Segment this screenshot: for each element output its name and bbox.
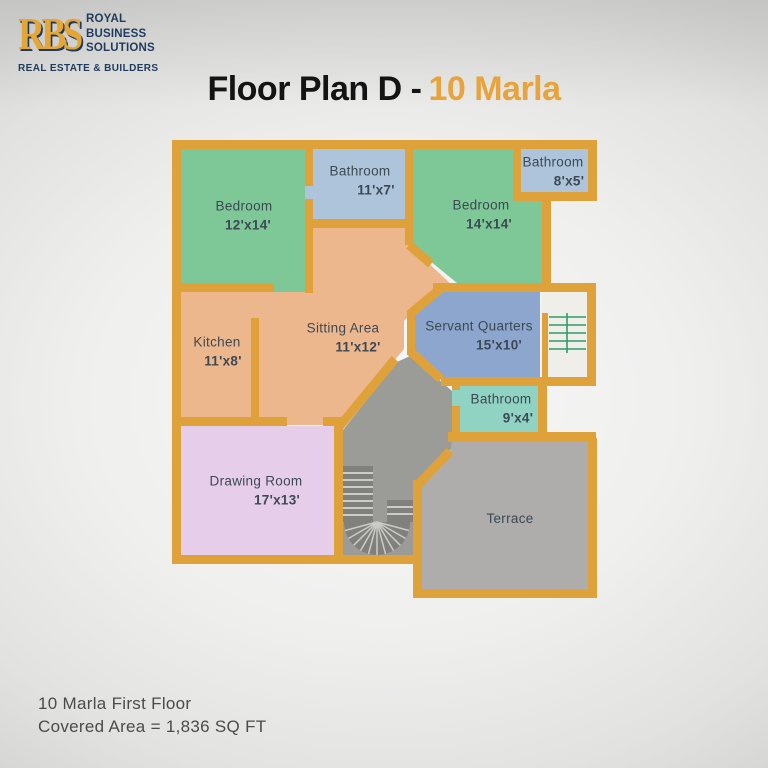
room-name: Bathroom	[471, 391, 532, 410]
room-size: 11'x8'	[199, 352, 246, 371]
room-name: Kitchen	[193, 334, 240, 353]
footer-line1: 10 Marla First Floor	[38, 692, 266, 715]
stair-treads-left	[343, 473, 373, 515]
floor-plan	[0, 0, 768, 768]
room-label-sitting-area: Sitting Area 11'x12'	[307, 320, 380, 357]
room-name: Bathroom	[523, 154, 584, 173]
wall	[172, 140, 181, 564]
wall	[542, 198, 551, 285]
room-size: 8'x5'	[539, 172, 600, 191]
wall	[513, 192, 597, 201]
wall	[513, 140, 521, 201]
room-label-bedroom-2: Bedroom 14'x14'	[453, 197, 510, 234]
room-label-servant-quarters: Servant Quarters 15'x10'	[425, 318, 533, 355]
room-name: Bedroom	[216, 198, 273, 217]
wall	[172, 140, 596, 149]
wall	[172, 283, 274, 292]
wall	[587, 283, 596, 378]
wall	[334, 417, 343, 564]
room-size: 14'x14'	[461, 215, 518, 234]
wall	[251, 318, 259, 425]
wall	[305, 199, 313, 293]
wall	[305, 140, 313, 186]
room-name: Servant Quarters	[425, 318, 533, 337]
room-name: Bedroom	[453, 197, 510, 216]
room-label-kitchen: Kitchen 11'x8'	[193, 334, 240, 371]
wall	[433, 283, 548, 292]
room-name: Sitting Area	[307, 320, 380, 339]
staircase-hall-area	[542, 292, 587, 377]
wall	[452, 385, 460, 390]
stair-flight-right	[387, 500, 415, 522]
wall	[407, 310, 415, 355]
room-label-terrace: Terrace	[486, 510, 533, 529]
room-label-bathroom-2: Bathroom 8'x5'	[523, 154, 584, 191]
room-size: 9'x4'	[488, 409, 549, 428]
footer: 10 Marla First Floor Covered Area = 1,83…	[38, 692, 266, 738]
wall	[441, 377, 596, 386]
room-label-bathroom-3: Bathroom 9'x4'	[471, 391, 532, 428]
room-size: 15'x10'	[445, 336, 553, 355]
room-size: 11'x7'	[346, 181, 407, 200]
room-label-bedroom-1: Bedroom 12'x14'	[216, 198, 273, 235]
wall	[413, 480, 422, 592]
wall	[588, 438, 597, 597]
wall	[172, 417, 287, 426]
wall	[452, 406, 460, 433]
room-label-drawing-room: Drawing Room 17'x13'	[210, 473, 303, 510]
footer-line2: Covered Area = 1,836 SQ FT	[38, 715, 266, 738]
room-label-bathroom-1: Bathroom 11'x7'	[330, 163, 391, 200]
room-name: Bathroom	[330, 163, 391, 182]
wall	[305, 219, 413, 228]
room-size: 11'x12'	[322, 338, 395, 357]
room-name: Drawing Room	[210, 473, 303, 492]
wall	[448, 432, 596, 442]
room-size: 12'x14'	[220, 216, 277, 235]
wall	[172, 555, 422, 564]
wall	[413, 589, 597, 598]
room-name: Terrace	[486, 510, 533, 529]
page: RBS ROYAL BUSINESS SOLUTIONS REAL ESTATE…	[0, 0, 768, 768]
wall	[588, 140, 597, 201]
room-size: 17'x13'	[231, 491, 324, 510]
